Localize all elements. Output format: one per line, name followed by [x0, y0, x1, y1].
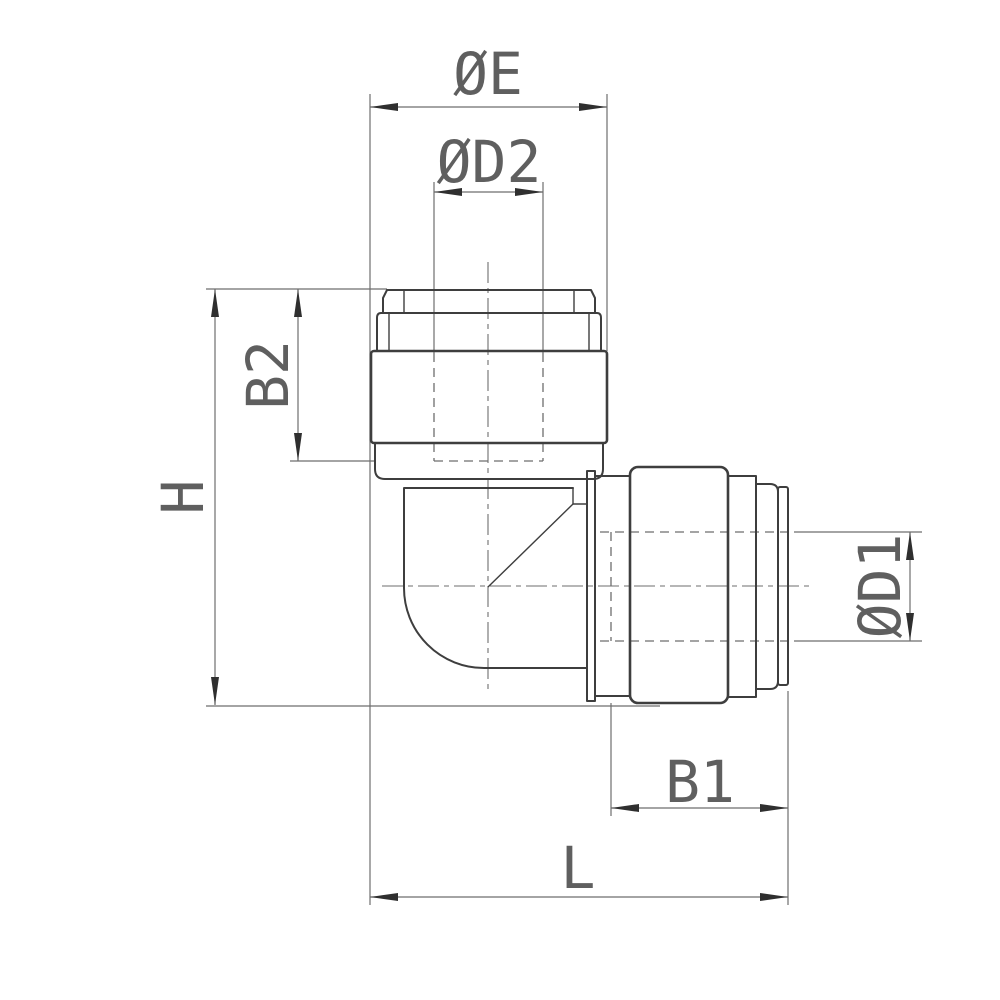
hidden-bore-lines: [434, 353, 788, 641]
right-port-collet: [587, 467, 788, 703]
top-port-collet: [371, 290, 607, 479]
label-diameter-d1: ØD1: [846, 534, 914, 639]
dimension-labels: ØE ØD2 B2 H ØD1 B1 L: [149, 40, 914, 902]
label-diameter-d2: ØD2: [437, 128, 542, 196]
dimension-lines: [215, 107, 910, 897]
elbow-body: [404, 488, 587, 668]
drawing-page: ØE ØD2 B2 H ØD1 B1 L: [0, 0, 1000, 1000]
extension-lines: [206, 94, 922, 905]
dimension-arrows: [211, 103, 914, 901]
technical-drawing: ØE ØD2 B2 H ØD1 B1 L: [0, 0, 1000, 1000]
label-h: H: [149, 480, 217, 515]
label-b1: B1: [665, 748, 735, 816]
label-diameter-e: ØE: [453, 40, 523, 108]
label-l: L: [561, 834, 596, 902]
label-b2: B2: [234, 340, 302, 410]
